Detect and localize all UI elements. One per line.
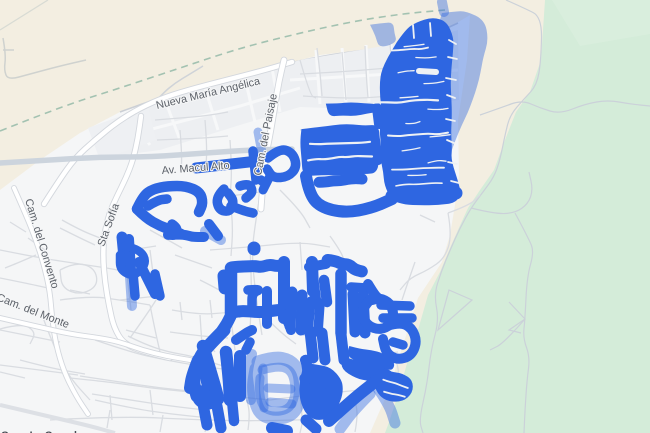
svg-text:Cam. La Canada: Cam. La Canada	[1, 430, 83, 433]
